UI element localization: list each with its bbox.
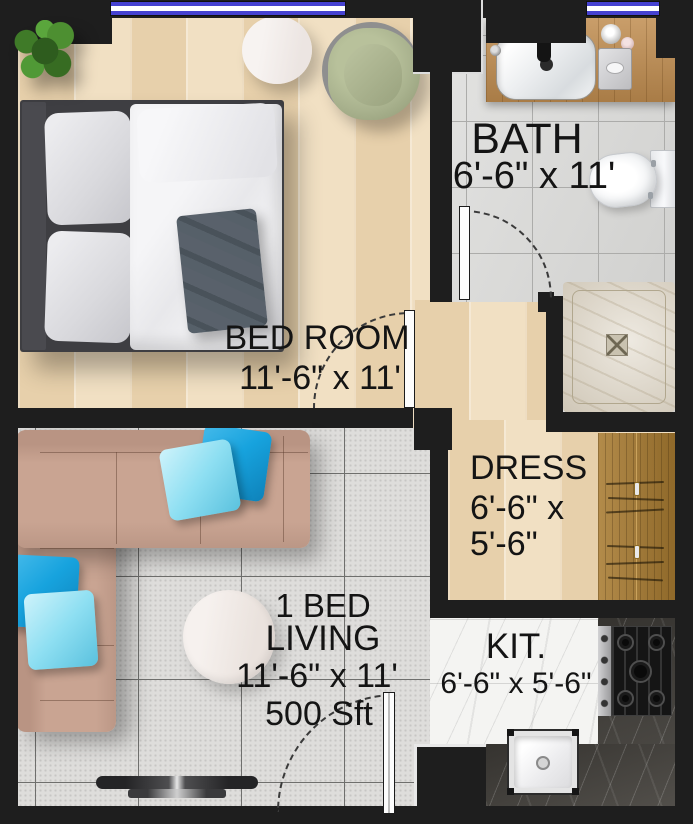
wall-shower-bottom (546, 412, 675, 432)
vanity-jar-right (601, 24, 621, 44)
dress-room-dims-line1: 6'-6" x (470, 490, 590, 527)
kitchen-sink-corner (572, 729, 579, 736)
kitchen-sink-drain (536, 756, 550, 770)
wall-top-right-corner (656, 18, 693, 58)
toilet-hinge-top (651, 160, 656, 167)
bed-pillow-bottom (44, 231, 134, 344)
sofa-seam (40, 700, 114, 701)
wall-entrance-block (414, 744, 486, 806)
floor-plan: BATH 6'-6" x 11' BED ROOM 11'-6" x 11' D… (0, 0, 693, 824)
sofa-seam (116, 452, 117, 544)
wall-bedroom-living (0, 408, 312, 428)
sofa-pillow-light-left (23, 590, 98, 671)
wardrobe-handle-top (634, 482, 640, 496)
plant (14, 20, 76, 82)
window-bath (586, 1, 660, 16)
stove-burner (617, 634, 634, 651)
bed-blanket (176, 208, 268, 334)
stove-burner-center (629, 660, 652, 683)
toilet-hinge-bottom (648, 192, 653, 199)
bed-duvet-pillow (136, 102, 278, 183)
armchair-cushion (344, 44, 402, 106)
kitchen-sink-corner (572, 788, 579, 795)
stove-burner (648, 634, 665, 651)
shower-drain (606, 334, 628, 356)
vanity-jar-left-small (490, 45, 501, 56)
wall-shower-left (546, 296, 563, 414)
bath-room-dims: 6'-6" x 11' (444, 156, 624, 197)
kitchen-label: KIT. (436, 628, 596, 666)
kitchen-dims: 6'-6" x 5'-6" (428, 668, 604, 700)
kitchen-sink-corner (507, 729, 514, 736)
living-room-label: LIVING (223, 620, 423, 658)
tissue-box-oval (606, 62, 624, 74)
stove-burner (648, 690, 665, 707)
kitchen-sink-corner (507, 788, 514, 795)
unit-area-label: 500 Sft (219, 696, 419, 733)
tv-screen (96, 776, 258, 789)
sofa-seam (40, 548, 114, 549)
wall-dress-bottom (430, 600, 675, 618)
bed-pillow-top (44, 111, 134, 226)
living-room-dims: 11'-6" x 11' (217, 658, 417, 695)
wardrobe-divider (636, 433, 637, 600)
window-bedroom (110, 1, 346, 16)
bath-door-leaf (459, 206, 470, 300)
side-table (242, 16, 312, 84)
stove-burner (617, 690, 634, 707)
wardrobe-handle-bottom (634, 545, 640, 559)
dress-room-label: DRESS (470, 450, 590, 487)
dress-room-dims-line2: 5'-6" (470, 526, 590, 563)
bedroom-label: BED ROOM (217, 320, 417, 357)
wall-right (675, 0, 693, 824)
wall-top-right-thick (486, 18, 586, 43)
wall-dress-left (430, 433, 448, 600)
tv-stand (128, 789, 226, 798)
bed-headboard (22, 102, 46, 350)
bedroom-dims: 11'-6" x 11' (220, 360, 420, 397)
sofa-pillow-light-top (158, 438, 241, 521)
